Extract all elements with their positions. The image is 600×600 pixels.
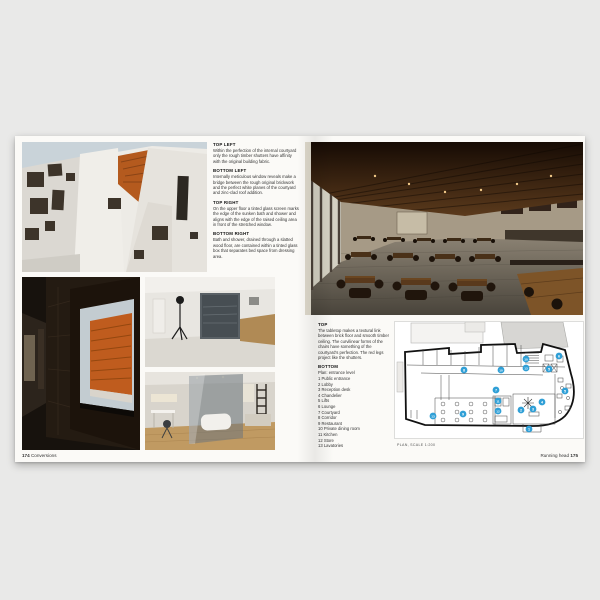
- plan-marker-label: 6: [558, 354, 560, 358]
- plan-marker-label: 2: [520, 408, 522, 412]
- right-running-head: Running head: [540, 453, 569, 458]
- floor-plan-drawing: 1234556789101011121313: [395, 322, 583, 438]
- photo-corridor-window: [22, 277, 140, 450]
- photo-bedroom-lamp-interior: [145, 277, 275, 367]
- left-running-head: Conversions: [31, 453, 57, 458]
- caption-block-3: BOTTOM RIGHTBath and shower, drained thr…: [213, 231, 299, 259]
- left-page-number: 174: [22, 453, 30, 458]
- caption-body: Bath and shower, drained through a slatt…: [213, 237, 299, 259]
- plan-caption: PLAN, SCALE 1:200: [397, 443, 435, 447]
- plan-marker-label: 5: [548, 367, 550, 371]
- caption-heading: TOP RIGHT: [213, 200, 299, 205]
- caption-block-2: TOP RIGHTOn the upper floor a tinted gla…: [213, 200, 299, 228]
- plan-marker-label: 13: [524, 366, 528, 370]
- caption-body: Within the perfection of the internal co…: [213, 148, 299, 164]
- restaurant-illustration: [305, 142, 583, 315]
- corridor-illustration: [22, 277, 140, 450]
- floor-plan: 1234556789101011121313: [395, 322, 583, 438]
- caption-block-1: BOTTOM LEFTInternally meticulous window …: [213, 168, 299, 196]
- book-product-photo: TOP LEFTWithin the perfection of the int…: [0, 0, 600, 600]
- plan-marker-label: 13: [431, 414, 435, 418]
- caption-heading: TOP LEFT: [213, 142, 299, 147]
- courtyard-illustration: [22, 142, 207, 272]
- plan-marker-label: 3: [532, 407, 534, 411]
- plan-marker-label: 12: [496, 409, 500, 413]
- plan-marker-label: 8: [463, 368, 465, 372]
- left-captions: TOP LEFTWithin the perfection of the int…: [213, 142, 299, 263]
- page-gutter: [297, 136, 333, 462]
- plan-marker-label: 11: [496, 399, 500, 403]
- caption-body: On the upper floor a tinted glass screen…: [213, 206, 299, 228]
- caption-block-0: TOP LEFTWithin the perfection of the int…: [213, 142, 299, 164]
- photo-bathroom-glass-box: [145, 372, 275, 450]
- caption-heading: BOTTOM RIGHT: [213, 231, 299, 236]
- bathroom-illustration: [145, 372, 275, 450]
- plan-marker-label: 7: [495, 388, 497, 392]
- photo-courtyard-shutters: [22, 142, 207, 272]
- caption-heading: BOTTOM LEFT: [213, 168, 299, 173]
- plan-marker-label: 10: [524, 357, 528, 361]
- right-page-footer: Running head 175: [540, 453, 578, 458]
- book-spread: TOP LEFTWithin the perfection of the int…: [15, 136, 585, 462]
- plan-marker-label: 10: [499, 368, 503, 372]
- plan-marker-label: 9: [462, 412, 464, 416]
- plan-marker-label: 5: [564, 389, 566, 393]
- right-page-number: 175: [570, 453, 578, 458]
- photo-restaurant-hall: [305, 142, 583, 315]
- plan-marker-label: 1: [528, 427, 530, 431]
- left-page-footer: 174 Conversions: [22, 453, 57, 458]
- bedroom-illustration: [145, 277, 275, 367]
- caption-body: Internally meticulous window reveals mak…: [213, 174, 299, 196]
